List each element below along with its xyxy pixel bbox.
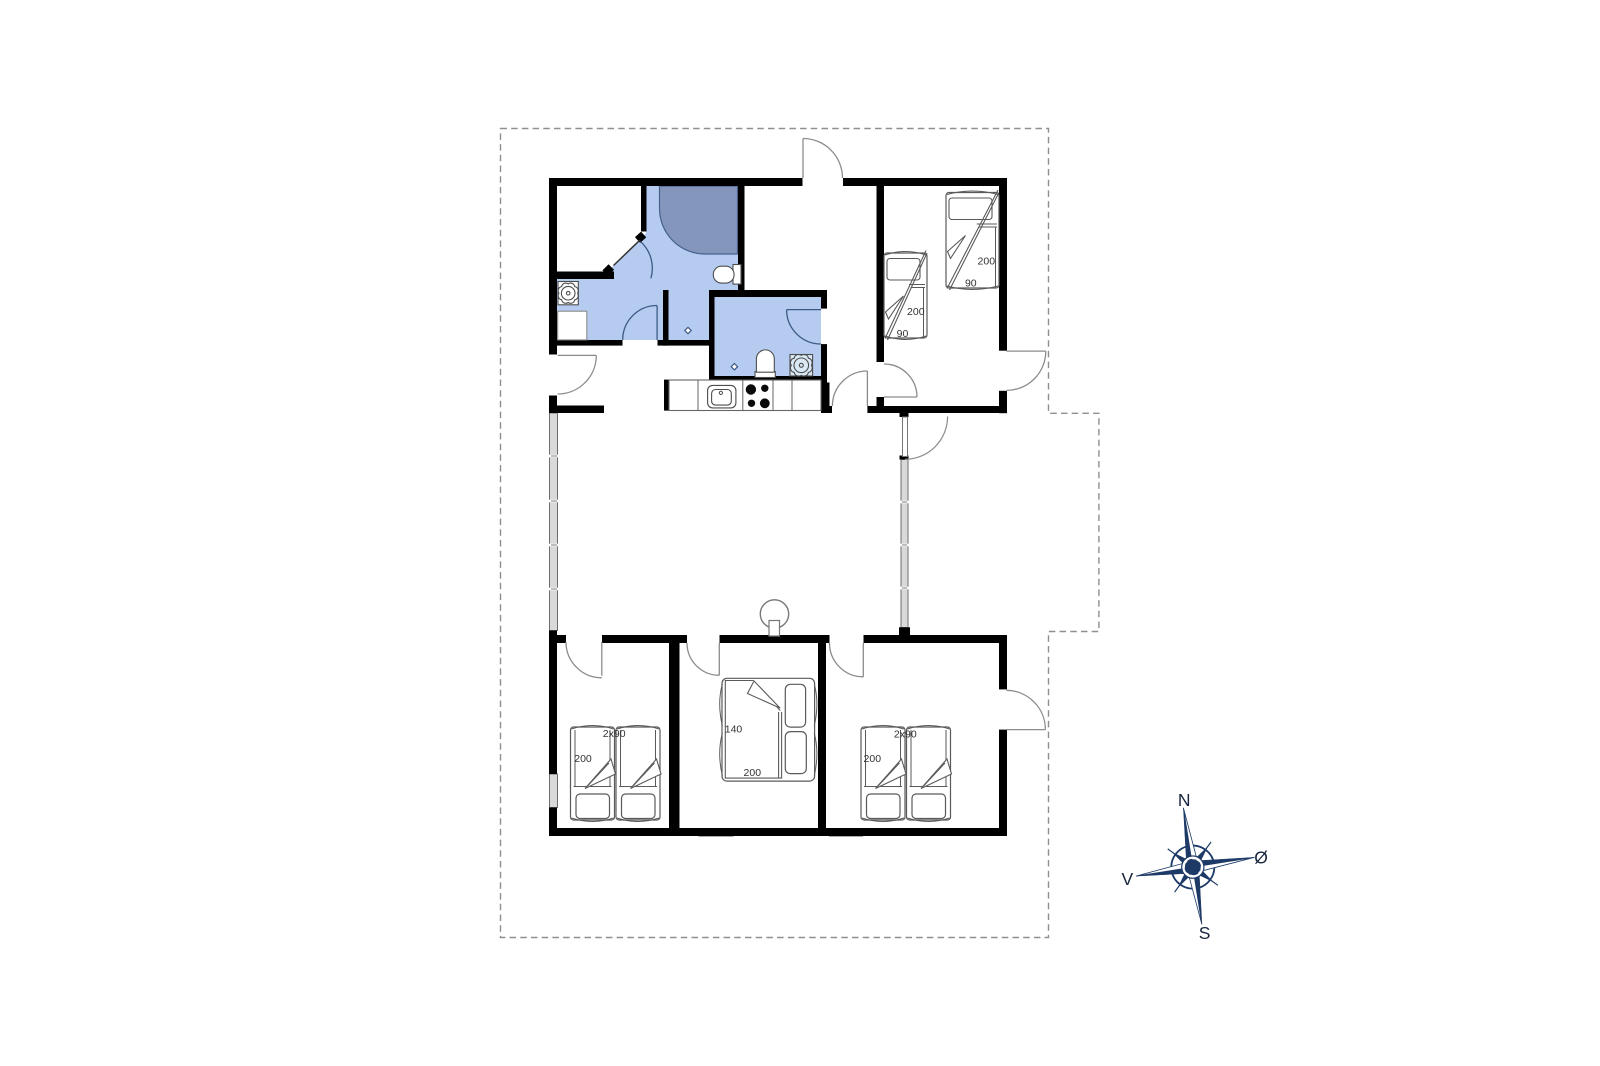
svg-text:200: 200 (978, 256, 996, 268)
svg-text:2x90: 2x90 (894, 729, 917, 741)
svg-text:200: 200 (744, 767, 762, 779)
svg-text:V: V (1121, 869, 1133, 889)
svg-text:S: S (1199, 923, 1211, 943)
svg-text:Ø: Ø (1254, 847, 1268, 867)
svg-text:200: 200 (907, 306, 925, 318)
svg-text:2x90: 2x90 (603, 728, 626, 740)
svg-text:200: 200 (864, 753, 882, 765)
svg-text:90: 90 (897, 328, 909, 340)
svg-text:140: 140 (725, 724, 743, 736)
svg-text:200: 200 (574, 753, 592, 765)
svg-text:90: 90 (965, 278, 977, 290)
svg-text:N: N (1178, 790, 1191, 810)
